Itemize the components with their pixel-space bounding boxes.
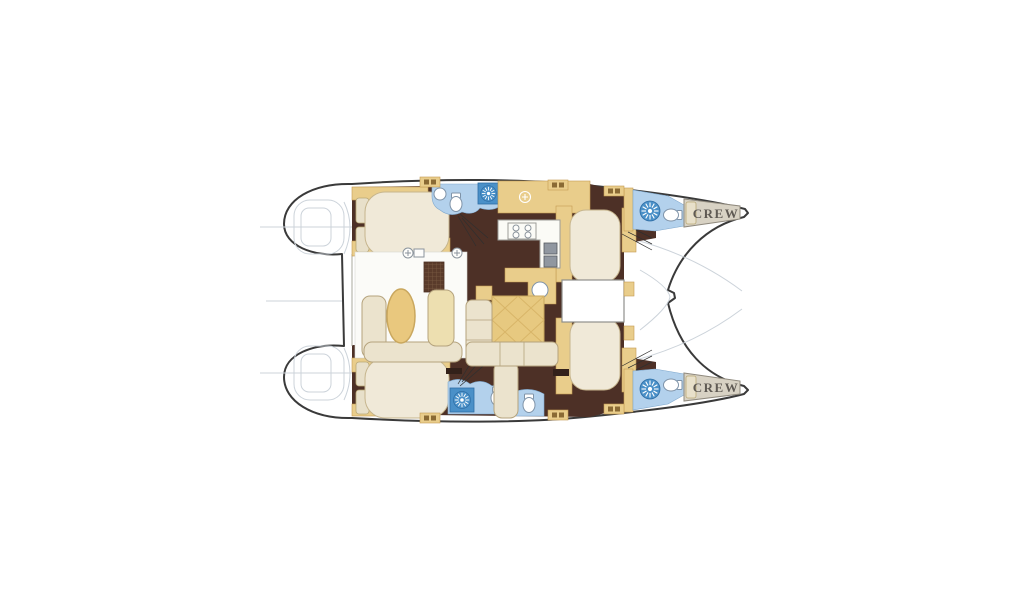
- cabinet: [476, 286, 492, 300]
- counter-fitting: [414, 249, 424, 257]
- sink-icon: [452, 248, 462, 258]
- locker: [446, 368, 462, 374]
- port-bow-head: [624, 188, 684, 231]
- saloon-seating: [466, 296, 558, 366]
- double-bed: [570, 318, 620, 390]
- shower-icon: [454, 392, 471, 409]
- port-crew-cabin: CREW: [684, 199, 740, 227]
- oven: [544, 243, 557, 254]
- shower-icon: [640, 379, 660, 399]
- lounge-area: [355, 248, 467, 362]
- toilet-icon: [664, 379, 683, 391]
- hatch-icon: [420, 177, 440, 187]
- galley-upper-cabinets: [498, 181, 590, 213]
- companionway-seat: [494, 362, 518, 418]
- washbasin-icon: [434, 188, 446, 200]
- shower-icon: [481, 186, 497, 202]
- locker: [553, 369, 569, 376]
- crew-label: CREW: [693, 206, 739, 221]
- hatch-icon: [604, 404, 624, 414]
- hatch-icon: [420, 413, 440, 423]
- toilet-icon: [450, 193, 462, 212]
- toilet-icon: [664, 209, 683, 221]
- hatch-icon: [604, 186, 624, 196]
- stove: [508, 223, 536, 239]
- starboard-aft-cabin: [352, 356, 450, 418]
- double-bed: [365, 358, 449, 418]
- fridge: [544, 256, 557, 267]
- toilet-icon: [523, 394, 535, 413]
- hatch-icon: [548, 180, 568, 190]
- lounge-table: [387, 289, 415, 343]
- catamaran-floor-plan-page: CREW CREW: [0, 0, 1024, 600]
- lounge-sofa: [428, 290, 454, 346]
- saloon-sofa: [466, 342, 558, 366]
- shower-icon: [640, 201, 660, 221]
- cockpit-floor: [562, 280, 624, 322]
- hatch-icon: [548, 410, 568, 420]
- chart-table: [424, 262, 444, 292]
- catamaran-floor-plan: CREW CREW: [0, 0, 1024, 600]
- port-aft-head: [432, 183, 500, 215]
- sink-icon: [403, 248, 413, 258]
- crew-label: CREW: [693, 380, 739, 395]
- double-bed: [570, 210, 620, 282]
